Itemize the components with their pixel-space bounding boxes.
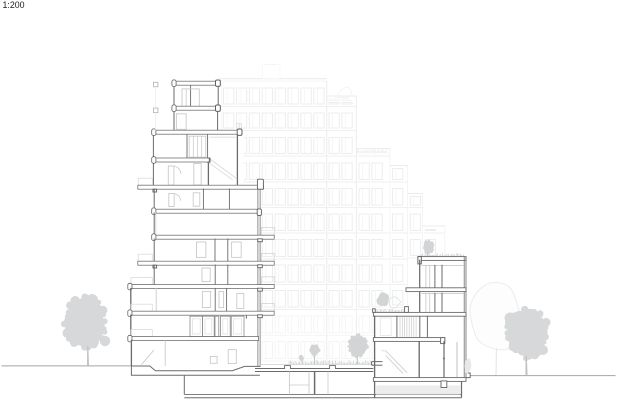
svg-text:1:200: 1:200 [3,0,25,10]
